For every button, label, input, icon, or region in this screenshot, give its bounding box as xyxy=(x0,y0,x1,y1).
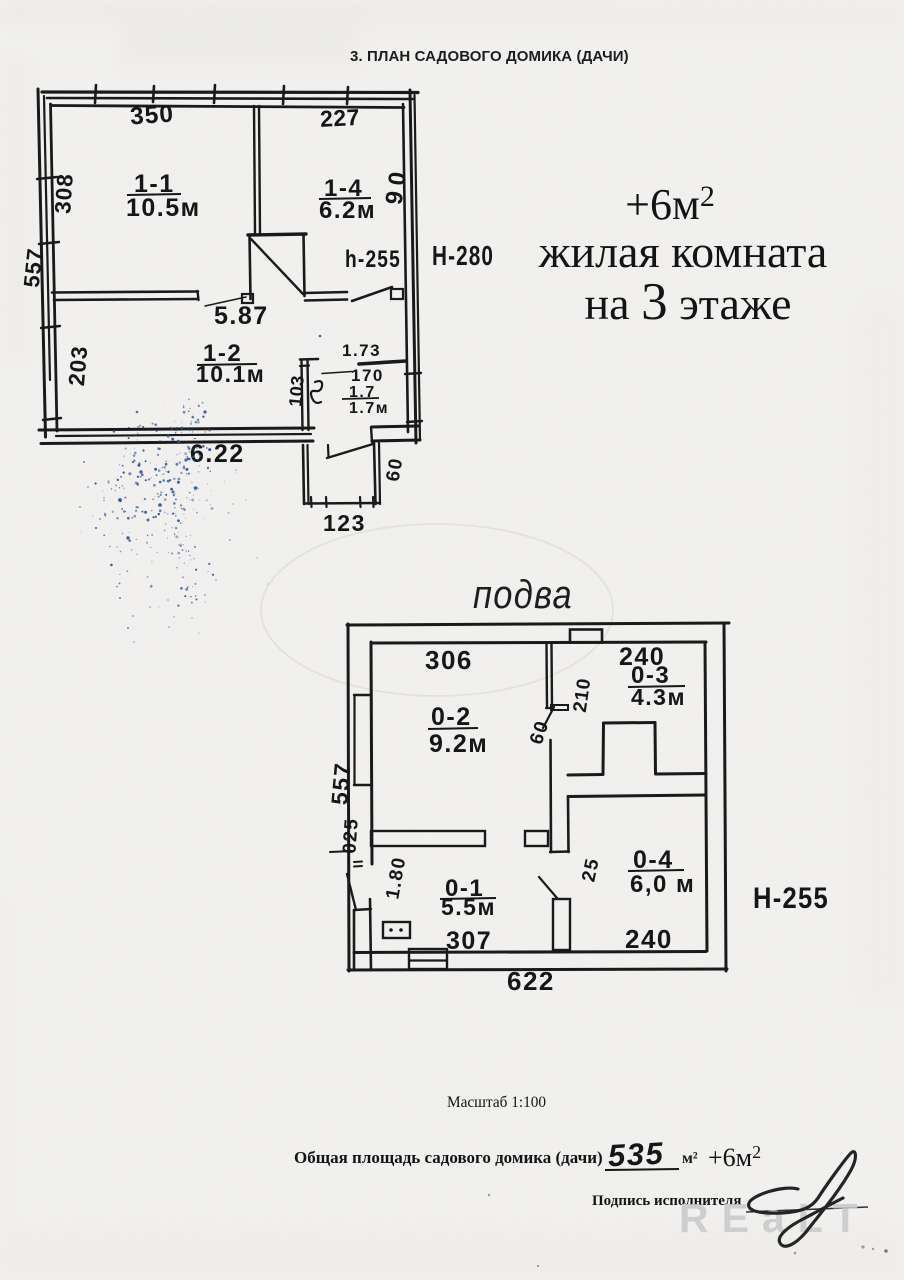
svg-text:0-2: 0-2 xyxy=(431,703,472,731)
svg-text:203: 203 xyxy=(64,344,92,387)
svg-text:10.5м: 10.5м xyxy=(126,194,201,222)
svg-text:535: 535 xyxy=(607,1135,665,1173)
svg-text:h-255: h-255 xyxy=(345,246,401,273)
svg-text:9.2м: 9.2м xyxy=(429,730,488,758)
svg-text:557: 557 xyxy=(326,761,356,806)
svg-text:на 3 этаже: на 3 этаже xyxy=(585,273,792,331)
svg-text:557: 557 xyxy=(19,247,48,289)
svg-text:90: 90 xyxy=(381,164,413,206)
svg-text:350: 350 xyxy=(129,101,175,131)
svg-text:1.7м: 1.7м xyxy=(349,400,389,417)
svg-text:6.2м: 6.2м xyxy=(319,197,376,224)
svg-text:Масштаб 1:100: Масштаб 1:100 xyxy=(447,1094,546,1111)
svg-text:10.1м: 10.1м xyxy=(196,361,265,387)
svg-text:123: 123 xyxy=(323,510,366,536)
svg-text:240: 240 xyxy=(625,924,673,954)
svg-text:025: 025 xyxy=(339,817,362,855)
svg-text:3. ПЛАН САДОВОГО ДОМИКА (ДАЧИ): 3. ПЛАН САДОВОГО ДОМИКА (ДАЧИ) xyxy=(350,48,629,65)
svg-text:308: 308 xyxy=(50,172,78,214)
svg-text:60: 60 xyxy=(383,456,408,483)
svg-text:306: 306 xyxy=(425,645,473,675)
svg-text:REaLT: REaLT xyxy=(679,1195,871,1241)
svg-text:Н-280: Н-280 xyxy=(432,240,494,271)
svg-text:м²: м² xyxy=(682,1150,698,1167)
svg-text:Н-255: Н-255 xyxy=(753,882,829,915)
svg-text:Общая площадь садового домика: Общая площадь садового домика (дачи) xyxy=(294,1148,603,1167)
svg-text:227: 227 xyxy=(319,104,360,132)
svg-text:103: 103 xyxy=(285,374,308,407)
svg-text:170: 170 xyxy=(351,366,384,385)
svg-text:622: 622 xyxy=(507,966,555,996)
svg-text:5.87: 5.87 xyxy=(214,302,269,330)
svg-text:307: 307 xyxy=(446,927,492,955)
svg-text:подва: подва xyxy=(473,573,573,617)
svg-text:жилая комната: жилая комната xyxy=(538,226,828,277)
svg-text:5.5м: 5.5м xyxy=(441,894,496,920)
svg-text:6,0 м: 6,0 м xyxy=(630,871,695,898)
svg-text:4.3м: 4.3м xyxy=(631,684,686,710)
svg-text:1.73: 1.73 xyxy=(342,341,381,360)
